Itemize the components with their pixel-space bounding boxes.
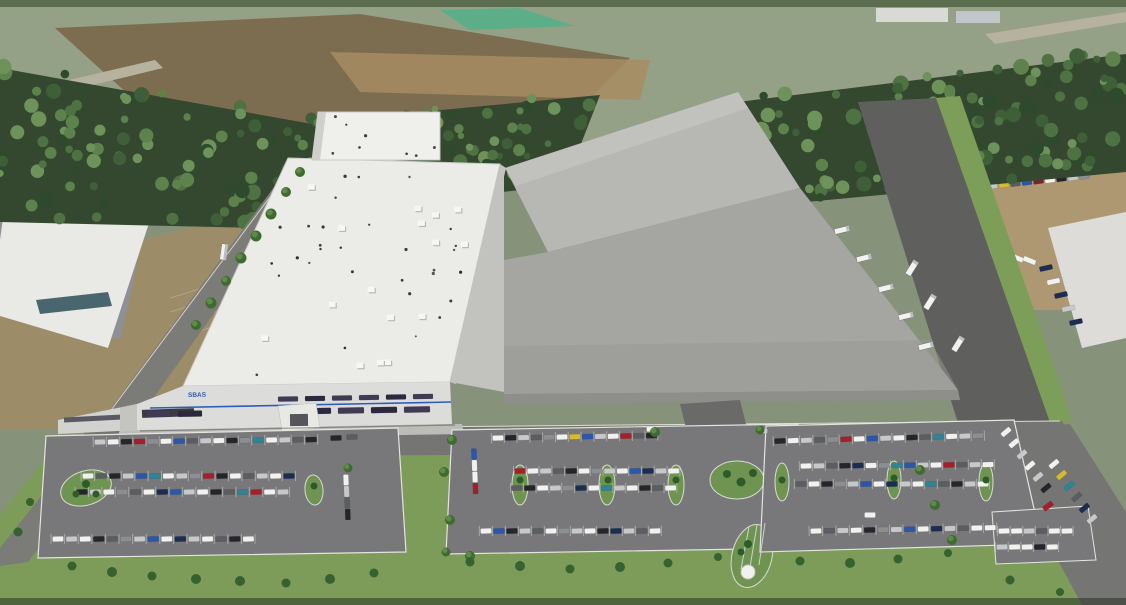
car (203, 473, 214, 479)
gray-roof-front-shade (504, 340, 958, 394)
tree (1044, 123, 1058, 137)
tree (443, 130, 454, 141)
tree (545, 140, 552, 147)
tree (459, 271, 462, 274)
tree (805, 185, 814, 194)
car (190, 473, 201, 479)
car (840, 436, 851, 442)
tree (211, 213, 223, 225)
tree (801, 139, 814, 152)
bush (983, 477, 990, 484)
car (160, 438, 171, 444)
tree (71, 100, 82, 111)
roof-unit (329, 302, 336, 308)
car (880, 435, 891, 441)
car (566, 468, 577, 474)
entrance-doorway (290, 414, 308, 426)
car (506, 528, 517, 534)
lot-a-row-4 (51, 536, 256, 542)
car (292, 437, 303, 443)
roof-unit (418, 314, 425, 320)
tree (1069, 48, 1085, 64)
distant-building-2 (956, 11, 1000, 23)
car (174, 438, 185, 444)
car (610, 528, 621, 534)
car (946, 434, 957, 440)
tree (94, 125, 105, 136)
bush (615, 562, 625, 572)
tree (982, 93, 997, 108)
car (837, 528, 848, 534)
tree (832, 90, 840, 98)
car (904, 526, 915, 532)
tree (358, 176, 361, 179)
tree (1093, 56, 1100, 63)
car (279, 437, 290, 443)
tree (1006, 107, 1021, 122)
tree (507, 123, 517, 133)
tree (458, 133, 464, 139)
tree (26, 200, 38, 212)
tree (846, 109, 862, 125)
roof-unit (338, 225, 345, 231)
car (240, 438, 251, 444)
bush (664, 559, 673, 568)
car (188, 536, 199, 542)
tree (1068, 139, 1077, 148)
tree (761, 108, 776, 123)
car (540, 468, 551, 474)
tree-highlight (282, 188, 288, 194)
tree (65, 146, 73, 154)
tree (345, 124, 347, 126)
car (633, 433, 644, 439)
tree (65, 182, 75, 192)
car (237, 489, 248, 495)
tree-highlight (448, 436, 454, 442)
bush (235, 576, 245, 586)
car (795, 481, 806, 487)
tree (1013, 59, 1029, 75)
tree (432, 106, 439, 113)
tree (777, 87, 792, 102)
car (492, 435, 503, 441)
car (899, 481, 910, 487)
tree (248, 119, 261, 132)
car (665, 485, 676, 491)
roof-unit (418, 220, 425, 226)
tree (100, 199, 109, 208)
tree (39, 160, 47, 168)
tree (415, 335, 417, 337)
bush (737, 478, 746, 487)
car (213, 438, 224, 444)
tree (245, 172, 257, 184)
car (814, 437, 825, 443)
car (518, 435, 529, 441)
car (620, 433, 631, 439)
car (996, 544, 1007, 550)
car (1009, 544, 1020, 550)
bush (282, 579, 291, 588)
car (82, 473, 93, 479)
bush (605, 477, 612, 484)
car (834, 481, 845, 487)
car (473, 483, 479, 494)
car (860, 481, 871, 487)
tree (56, 134, 66, 144)
tree (32, 87, 41, 96)
tree (113, 152, 126, 165)
car (588, 485, 599, 491)
tree (415, 154, 418, 157)
car (958, 525, 969, 531)
tree (895, 93, 903, 101)
roof-unit (261, 335, 268, 341)
car (264, 489, 275, 495)
car (930, 462, 941, 468)
tree (1045, 78, 1054, 87)
aerial-rendering: SBAS (0, 0, 1126, 605)
car (938, 481, 949, 487)
tree (235, 183, 250, 198)
bush (779, 477, 786, 484)
tree (1101, 74, 1109, 82)
tree (203, 147, 214, 158)
car (345, 509, 351, 520)
car (524, 485, 535, 491)
car (891, 527, 902, 533)
tree (307, 225, 310, 228)
car (801, 437, 812, 443)
tree (993, 65, 1003, 75)
car (505, 435, 516, 441)
tree (279, 226, 282, 229)
car (904, 462, 915, 468)
tree (368, 224, 370, 226)
distant-building-1 (876, 8, 948, 22)
car (972, 433, 983, 439)
car (210, 489, 221, 495)
car (277, 489, 288, 495)
car (514, 468, 525, 474)
tree (257, 138, 269, 150)
tree (1078, 157, 1085, 164)
bush (744, 540, 752, 548)
bush (73, 491, 80, 498)
car (893, 435, 904, 441)
tree (759, 92, 767, 100)
tree-highlight (931, 501, 937, 507)
car (134, 536, 145, 542)
car (80, 536, 91, 542)
tree (334, 197, 336, 199)
car (343, 474, 349, 485)
car (800, 463, 811, 469)
tree-highlight (466, 552, 472, 558)
car (146, 411, 170, 417)
tree (487, 150, 498, 161)
car (604, 468, 615, 474)
roof-unit (461, 242, 468, 248)
car (278, 396, 298, 401)
bush (1056, 588, 1064, 596)
car (813, 463, 824, 469)
car (163, 473, 174, 479)
tree-highlight (756, 426, 761, 431)
tree (433, 269, 436, 272)
bush (82, 480, 90, 488)
car (964, 481, 975, 487)
tree (134, 87, 149, 102)
tree (922, 72, 931, 81)
tree (340, 247, 342, 249)
car (584, 528, 595, 534)
tree (433, 146, 436, 149)
facade-west-return (120, 404, 137, 432)
tree (225, 185, 234, 194)
bush (894, 555, 903, 564)
tree (821, 176, 834, 189)
car (550, 485, 561, 491)
tree (1006, 174, 1017, 185)
tree (92, 212, 102, 222)
car (187, 438, 198, 444)
car (810, 528, 821, 534)
car (931, 526, 942, 532)
car (413, 394, 433, 399)
car (136, 473, 147, 479)
car (216, 473, 227, 479)
lot-b-row-3 (510, 485, 678, 491)
car (591, 468, 602, 474)
building-sign: SBAS (188, 392, 207, 399)
car (865, 512, 876, 517)
tree (836, 180, 850, 194)
car (839, 463, 850, 469)
tree (237, 130, 245, 138)
bush (311, 483, 318, 490)
tree (90, 182, 98, 190)
tree-highlight (237, 253, 243, 259)
car (826, 463, 837, 469)
roof-unit (414, 206, 421, 212)
tree (351, 270, 354, 273)
car (120, 536, 131, 542)
car (531, 435, 542, 441)
tree (1105, 131, 1120, 146)
tree (1030, 142, 1043, 155)
car (582, 434, 593, 440)
tree (220, 207, 230, 217)
tree (1039, 154, 1053, 168)
roof-unit (384, 360, 391, 366)
car (563, 485, 574, 491)
tree (1052, 158, 1063, 169)
roof-unit (432, 240, 439, 246)
car (519, 528, 530, 534)
car (623, 528, 634, 534)
bush (796, 557, 805, 566)
tree (1074, 97, 1087, 110)
tree (995, 117, 1004, 126)
tree-highlight (207, 298, 213, 304)
car (847, 481, 858, 487)
tree (855, 161, 867, 173)
car (595, 434, 606, 440)
car (170, 489, 181, 495)
car (906, 435, 917, 441)
bush (107, 567, 117, 577)
tree (117, 132, 130, 145)
tree (808, 117, 821, 130)
tree (86, 143, 95, 152)
bush (68, 562, 77, 571)
tree (944, 85, 956, 97)
tree (72, 150, 83, 161)
tree (513, 144, 525, 156)
roof-unit (387, 315, 394, 321)
car (253, 437, 264, 443)
car (178, 410, 202, 416)
car (243, 473, 254, 479)
tree (408, 176, 410, 178)
tree (967, 93, 978, 104)
tree (956, 70, 963, 77)
car (827, 437, 838, 443)
car (627, 485, 638, 491)
car (143, 489, 154, 495)
car (229, 536, 240, 542)
tree (775, 110, 783, 118)
bush (566, 565, 575, 574)
car (330, 435, 341, 441)
tree (255, 374, 258, 377)
roof-unit (454, 207, 461, 213)
car (266, 437, 277, 443)
car (184, 489, 195, 495)
car (176, 473, 187, 479)
tree (61, 70, 70, 79)
car (107, 536, 118, 542)
lot-a-row-3 (75, 489, 291, 495)
tree (235, 109, 246, 120)
car (148, 536, 159, 542)
tree (180, 173, 194, 187)
tree (1090, 88, 1102, 100)
car (108, 439, 119, 445)
tree (37, 193, 53, 209)
car (175, 536, 186, 542)
car (103, 489, 114, 495)
tree (364, 134, 367, 137)
top-frame-bar (0, 0, 1126, 7)
car (134, 439, 145, 445)
tree (37, 136, 48, 147)
tree (449, 300, 452, 303)
bush (325, 574, 335, 584)
car (472, 471, 478, 482)
tree (454, 124, 463, 133)
car (243, 536, 254, 542)
car (149, 473, 160, 479)
tree-highlight (440, 468, 446, 474)
car (344, 497, 350, 508)
tree (856, 176, 871, 191)
car (821, 481, 832, 487)
car (117, 489, 128, 495)
tree (294, 135, 301, 142)
car (608, 433, 619, 439)
tree (1005, 156, 1013, 164)
car (553, 468, 564, 474)
car (1047, 544, 1058, 550)
car (224, 489, 235, 495)
car (306, 437, 317, 443)
car (1036, 528, 1047, 534)
bush (749, 469, 757, 477)
bush (723, 470, 731, 478)
car (639, 485, 650, 491)
tree (517, 123, 524, 130)
car (226, 438, 237, 444)
tree (158, 90, 166, 98)
car (824, 528, 835, 534)
car (147, 439, 158, 445)
car (891, 463, 902, 469)
car (52, 536, 63, 542)
tree (1109, 88, 1125, 104)
bush (515, 561, 525, 571)
lot-b-row-2 (513, 468, 681, 474)
tree-highlight (446, 516, 452, 522)
tree-highlight (222, 277, 228, 283)
car (161, 536, 172, 542)
tree (816, 159, 828, 171)
car (404, 406, 430, 412)
car (951, 481, 962, 487)
bush (673, 477, 680, 484)
bush (845, 558, 855, 568)
scene-svg: SBAS (0, 0, 1126, 605)
tree (121, 116, 129, 124)
tree (792, 129, 800, 137)
tree (578, 115, 588, 125)
car (578, 468, 589, 474)
car (1022, 544, 1033, 550)
tree (446, 110, 454, 118)
tree (358, 146, 361, 149)
tree (816, 193, 825, 202)
tree-highlight (344, 464, 349, 469)
roof-unit (377, 360, 384, 366)
tree (1042, 54, 1055, 67)
bush (944, 549, 952, 557)
car (854, 436, 865, 442)
car (346, 434, 357, 440)
car (537, 485, 548, 491)
tree (524, 153, 531, 160)
tree (308, 262, 310, 264)
tree (432, 272, 435, 275)
tree (155, 177, 169, 191)
tree-highlight (948, 536, 954, 542)
bottom-edge-shade (0, 598, 1126, 605)
roof-unit (356, 363, 363, 369)
bush (1006, 576, 1015, 585)
car (864, 527, 875, 533)
tree (270, 262, 273, 265)
